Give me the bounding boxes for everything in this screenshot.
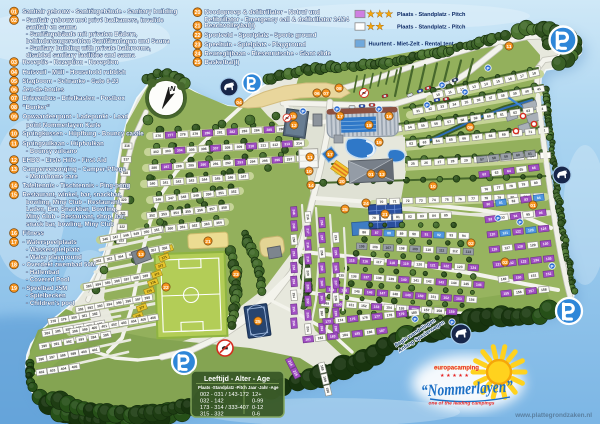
- svg-text:279: 279: [192, 132, 198, 136]
- svg-text:63: 63: [494, 171, 498, 175]
- svg-text:02: 02: [468, 241, 474, 247]
- svg-text:57: 57: [480, 157, 484, 161]
- svg-text:03: 03: [11, 60, 17, 66]
- svg-text:Miny Club - Restaurant, shop,: Miny Club - Restaurant, shop, bar,: [26, 215, 126, 221]
- svg-text:06: 06: [314, 91, 320, 97]
- svg-text:173: 173: [325, 319, 331, 324]
- svg-text:★: ★: [367, 22, 376, 33]
- svg-text:131: 131: [495, 262, 501, 267]
- svg-text:252: 252: [292, 265, 296, 271]
- svg-text:219: 219: [306, 256, 310, 262]
- svg-text:149: 149: [405, 293, 411, 297]
- svg-text:139: 139: [388, 277, 394, 281]
- svg-text:152: 152: [545, 272, 551, 277]
- svg-text:23: 23: [233, 272, 239, 278]
- svg-text:05: 05: [11, 79, 17, 85]
- svg-text:Restaurant, winkel, bar, snack: Restaurant, winkel, bar, snackbar,: [23, 193, 122, 199]
- svg-text:P: P: [550, 264, 553, 269]
- svg-text:65: 65: [449, 138, 453, 142]
- svg-text:25: 25: [342, 207, 348, 213]
- svg-text:314: 314: [296, 141, 302, 145]
- svg-text:156: 156: [516, 290, 522, 295]
- svg-text:Opwaardeerpunt - Ladepunkt - L: Opwaardeerpunt - Ladepunkt - Load: [23, 115, 129, 121]
- svg-text:01: 01: [368, 172, 374, 178]
- svg-text:Basketbal(l): Basketbal(l): [205, 60, 240, 66]
- svg-text:Sanitair gebouw - Sanitärgebäu: Sanitair gebouw - Sanitärgebäude - Sanit…: [23, 10, 178, 16]
- svg-text:226: 226: [334, 265, 338, 271]
- svg-text:229: 229: [334, 311, 338, 317]
- svg-text:81: 81: [396, 215, 400, 219]
- svg-text:158: 158: [436, 309, 442, 313]
- svg-text:N: N: [170, 84, 176, 93]
- svg-text:0-6: 0-6: [252, 412, 260, 418]
- svg-text:127: 127: [504, 246, 510, 251]
- svg-text:352: 352: [149, 213, 155, 218]
- svg-text:11: 11: [11, 141, 17, 147]
- svg-text:123: 123: [528, 228, 534, 233]
- svg-text:17: 17: [327, 152, 333, 158]
- svg-text:361: 361: [179, 225, 185, 230]
- svg-text:228: 228: [334, 295, 338, 301]
- svg-text:71: 71: [393, 199, 397, 203]
- svg-text:316: 316: [124, 144, 130, 148]
- svg-text:178: 178: [386, 313, 392, 318]
- svg-text:340: 340: [150, 181, 156, 185]
- svg-text:92: 92: [437, 233, 441, 237]
- svg-text:★: ★: [452, 373, 457, 379]
- svg-text:320: 320: [121, 198, 127, 202]
- svg-text:08: 08: [11, 105, 17, 111]
- svg-text:62: 62: [513, 111, 517, 115]
- svg-text:12: 12: [11, 158, 17, 164]
- svg-text:350: 350: [206, 192, 212, 197]
- svg-text:17: 17: [11, 240, 17, 246]
- svg-text:76: 76: [458, 197, 462, 201]
- svg-text:343: 343: [189, 178, 195, 182]
- svg-text:78: 78: [509, 184, 513, 188]
- svg-text:- Hallenbad: - Hallenbad: [26, 270, 59, 276]
- svg-text:Sportveld - Sportplatz - Sport: Sportveld - Sportplatz - Sports ground: [205, 33, 317, 39]
- svg-text:142: 142: [426, 279, 432, 283]
- svg-text:90: 90: [412, 232, 416, 236]
- svg-text:27: 27: [437, 160, 441, 164]
- svg-text:- Children's pool: - Children's pool: [26, 301, 75, 307]
- svg-text:347: 347: [241, 174, 247, 178]
- svg-text:Huurtent - Miet-Zelt - Rental: Huurtent - Miet-Zelt - Rental tent: [369, 42, 454, 48]
- svg-text:285: 285: [266, 128, 272, 132]
- svg-text:13: 13: [379, 172, 385, 178]
- svg-text:295: 295: [262, 159, 268, 163]
- svg-text:★: ★: [385, 9, 394, 20]
- svg-text:145: 145: [354, 289, 360, 293]
- svg-text:58: 58: [460, 118, 464, 122]
- svg-text:283: 283: [242, 129, 248, 133]
- svg-text:186: 186: [367, 330, 373, 335]
- svg-text:120: 120: [416, 262, 422, 266]
- svg-text:62: 62: [409, 142, 413, 146]
- svg-text:183: 183: [330, 334, 336, 339]
- svg-text:82: 82: [408, 215, 412, 219]
- svg-text:24: 24: [363, 201, 369, 207]
- svg-text:289: 289: [188, 163, 194, 167]
- svg-text:63: 63: [526, 109, 530, 113]
- svg-text:85: 85: [444, 213, 448, 217]
- svg-text:94: 94: [513, 214, 517, 218]
- svg-text:153: 153: [374, 305, 380, 309]
- svg-text:bowling, Miny Club - Restauran: bowling, Miny Club - Restaurant,: [26, 200, 122, 206]
- svg-text:02: 02: [502, 260, 508, 266]
- svg-text:137: 137: [363, 275, 369, 279]
- svg-text:121: 121: [502, 231, 508, 236]
- svg-text:155: 155: [503, 291, 509, 296]
- svg-text:25: 25: [255, 319, 261, 325]
- svg-text:347: 347: [168, 196, 174, 201]
- svg-text:353: 353: [161, 212, 167, 217]
- svg-text:124: 124: [470, 266, 476, 270]
- svg-text:Plaats - Standplatz - Pitch: Plaats - Standplatz - Pitch: [397, 12, 466, 18]
- svg-text:P: P: [377, 107, 380, 112]
- svg-text:- Sanitair gebouw met privé ba: - Sanitair gebouw met privé badkamers, i…: [23, 18, 165, 24]
- svg-text:123: 123: [457, 265, 463, 269]
- svg-text:- Sanitary building with priva: - Sanitary building with private bathroo…: [26, 46, 151, 52]
- svg-text:360: 360: [167, 226, 173, 231]
- svg-text:220: 220: [306, 270, 310, 276]
- svg-text:287: 287: [164, 165, 170, 169]
- svg-text:- Wasserspielplatz: - Wasserspielplatz: [26, 248, 80, 254]
- svg-text:136: 136: [351, 274, 357, 278]
- svg-text:177: 177: [374, 314, 380, 319]
- svg-text:352: 352: [231, 190, 237, 195]
- svg-text:141: 141: [413, 278, 419, 282]
- svg-text:Brievenbus - Briefkasten - Pos: Brievenbus - Briefkasten - Postbox: [23, 96, 126, 102]
- svg-text:249: 249: [292, 223, 296, 229]
- svg-text:Laden, Bar, Snackbar, Bowling,: Laden, Bar, Snackbar, Bowling,: [26, 207, 118, 213]
- svg-text:disabled sanitary facilities a: disabled sanitary facilities and sauna: [26, 53, 136, 59]
- svg-text:121: 121: [430, 263, 436, 267]
- svg-text:- Overdekt zwembad 50M: - Overdekt zwembad 50M: [23, 263, 96, 269]
- svg-text:92: 92: [488, 217, 492, 221]
- svg-text:356: 356: [197, 208, 203, 213]
- svg-text:362: 362: [192, 223, 198, 228]
- svg-text:341: 341: [163, 180, 169, 184]
- svg-text:75: 75: [445, 198, 449, 202]
- svg-text:P: P: [440, 83, 443, 88]
- svg-text:351: 351: [218, 191, 224, 196]
- svg-text:182: 182: [317, 336, 323, 341]
- svg-text:79: 79: [521, 182, 525, 186]
- svg-text:- Covered Pool: - Covered Pool: [26, 278, 70, 284]
- svg-text:146: 146: [476, 283, 482, 287]
- svg-text:68: 68: [488, 134, 492, 138]
- svg-text:184: 184: [342, 333, 348, 338]
- svg-text:346: 346: [155, 197, 161, 202]
- svg-text:59: 59: [504, 154, 508, 158]
- svg-text:Springvulkaan - Hüpfvulkan: Springvulkaan - Hüpfvulkan: [23, 142, 105, 148]
- svg-text:16: 16: [386, 114, 392, 120]
- svg-text:72: 72: [406, 199, 410, 203]
- svg-text:108: 108: [399, 246, 405, 250]
- svg-text:224: 224: [306, 326, 310, 332]
- svg-text:86: 86: [362, 230, 366, 234]
- svg-text:284: 284: [254, 128, 260, 132]
- svg-text:20: 20: [195, 10, 201, 16]
- svg-text:225: 225: [334, 250, 338, 256]
- svg-text:91: 91: [424, 233, 428, 237]
- svg-text:12: 12: [291, 123, 297, 129]
- svg-text:293: 293: [237, 160, 243, 164]
- svg-text:09: 09: [11, 114, 17, 120]
- svg-text:★: ★: [376, 22, 385, 33]
- svg-text:107: 107: [385, 246, 391, 250]
- svg-text:291: 291: [213, 162, 219, 166]
- svg-text:64: 64: [436, 139, 440, 143]
- svg-text:313: 313: [284, 142, 290, 146]
- svg-text:223: 223: [306, 312, 310, 318]
- svg-text:- Water playground: - Water playground: [26, 255, 82, 261]
- svg-text:140: 140: [401, 278, 407, 282]
- svg-text:83: 83: [420, 214, 424, 218]
- svg-text:EHBO - Erste Hilfe - First Aid: EHBO - Erste Hilfe - First Aid: [23, 158, 107, 164]
- svg-text:28: 28: [451, 159, 455, 163]
- svg-text:312: 312: [272, 143, 278, 147]
- svg-text:84: 84: [537, 196, 541, 200]
- svg-text:118: 118: [389, 261, 395, 265]
- svg-text:116: 116: [362, 259, 368, 263]
- svg-text:357: 357: [209, 207, 215, 212]
- svg-text:364: 364: [216, 221, 222, 226]
- svg-text:158: 158: [541, 288, 547, 293]
- svg-text:Speeltuin - Spielplatz - Playg: Speeltuin - Spielplatz - Playground: [205, 43, 307, 49]
- svg-text:14: 14: [308, 183, 314, 189]
- svg-text:22: 22: [163, 285, 169, 291]
- svg-text:257: 257: [320, 235, 324, 241]
- svg-text:250: 250: [292, 237, 296, 243]
- svg-text:Reuzeglijbaan - Riesenrutsche: Reuzeglijbaan - Riesenrutsche - Giant sl…: [205, 52, 332, 58]
- svg-text:10: 10: [306, 169, 312, 175]
- svg-text:345: 345: [215, 176, 221, 180]
- svg-text:★: ★: [458, 373, 463, 379]
- svg-text:67: 67: [475, 135, 479, 139]
- svg-text:342: 342: [176, 179, 182, 183]
- svg-text:P: P: [518, 220, 521, 225]
- svg-text:01: 01: [530, 203, 536, 209]
- svg-text:152: 152: [361, 304, 367, 308]
- svg-text:153: 153: [456, 297, 462, 301]
- svg-text:18: 18: [366, 123, 372, 129]
- svg-text:363: 363: [204, 222, 210, 227]
- svg-text:354: 354: [173, 211, 179, 216]
- svg-text:358: 358: [221, 205, 227, 210]
- svg-text:296: 296: [274, 158, 280, 162]
- svg-text:Plaats - Standplatz - Pitch: Plaats - Standplatz - Pitch: [397, 25, 466, 31]
- svg-text:124: 124: [541, 227, 547, 232]
- svg-text:185: 185: [354, 331, 360, 336]
- svg-text:144: 144: [451, 281, 457, 285]
- svg-text:10: 10: [11, 131, 17, 137]
- svg-text:255: 255: [292, 306, 296, 312]
- svg-text:305: 305: [189, 148, 195, 152]
- svg-text:09: 09: [467, 125, 473, 131]
- svg-text:Fitness: Fitness: [23, 231, 45, 237]
- svg-text:348: 348: [180, 195, 186, 200]
- svg-text:152: 152: [443, 296, 449, 300]
- svg-text:94: 94: [462, 234, 466, 238]
- svg-text:58: 58: [492, 156, 496, 160]
- svg-text:134: 134: [533, 258, 539, 263]
- svg-text:180: 180: [411, 311, 417, 316]
- svg-text:286: 286: [151, 166, 157, 170]
- svg-text:P: P: [450, 320, 453, 325]
- svg-text:302: 302: [153, 150, 159, 154]
- svg-text:113: 113: [465, 250, 471, 254]
- svg-text:95: 95: [526, 212, 530, 216]
- svg-text:P: P: [413, 317, 416, 322]
- svg-text:129: 129: [530, 243, 536, 248]
- svg-text:126: 126: [491, 247, 497, 252]
- svg-text:P: P: [301, 109, 304, 114]
- svg-text:115: 115: [349, 258, 355, 262]
- svg-text:307: 307: [213, 146, 219, 150]
- svg-text:★: ★: [376, 9, 385, 20]
- svg-text:74: 74: [432, 198, 436, 202]
- svg-text:106: 106: [372, 245, 378, 249]
- svg-text:04: 04: [11, 70, 17, 76]
- svg-text:66: 66: [532, 166, 536, 170]
- svg-text:82: 82: [511, 199, 515, 203]
- svg-text:Huisvuil - Müll - Household ru: Huisvuil - Müll - Household rubbish: [23, 70, 127, 76]
- svg-text:288: 288: [176, 164, 182, 168]
- svg-text:151: 151: [430, 295, 436, 299]
- svg-text:277: 277: [168, 133, 174, 137]
- svg-text:222: 222: [306, 298, 310, 304]
- svg-text:0-99: 0-99: [252, 399, 263, 405]
- svg-text:★: ★: [446, 373, 451, 379]
- svg-text:79: 79: [372, 216, 376, 220]
- svg-text:151: 151: [348, 303, 354, 307]
- svg-text:Tafeltennis - Tischtennis - Pi: Tafeltennis - Tischtennis - Ping-pong: [23, 184, 131, 190]
- svg-text:65: 65: [519, 167, 523, 171]
- svg-text:93: 93: [449, 233, 453, 237]
- svg-text:europacamping: europacamping: [434, 365, 479, 372]
- svg-text:66: 66: [462, 136, 466, 140]
- svg-text:181: 181: [305, 337, 311, 342]
- svg-text:128: 128: [517, 244, 523, 249]
- svg-text:224: 224: [334, 235, 338, 241]
- svg-text:01: 01: [11, 9, 17, 15]
- svg-text:08: 08: [336, 86, 342, 92]
- svg-text:P: P: [463, 90, 466, 95]
- svg-text:80: 80: [486, 202, 490, 206]
- svg-text:344: 344: [202, 177, 208, 181]
- svg-text:21: 21: [205, 239, 211, 245]
- svg-text:83: 83: [524, 197, 528, 201]
- svg-text:135: 135: [546, 257, 552, 262]
- svg-text:276: 276: [155, 134, 161, 138]
- svg-text:10: 10: [430, 184, 436, 190]
- svg-text:155: 155: [399, 306, 405, 310]
- svg-text:56: 56: [434, 122, 438, 126]
- svg-text:76: 76: [484, 187, 488, 191]
- svg-text:304: 304: [177, 148, 183, 152]
- svg-text:P: P: [335, 107, 338, 112]
- svg-text:81: 81: [499, 201, 503, 205]
- svg-text:218: 218: [306, 242, 310, 248]
- svg-text:290: 290: [200, 163, 206, 167]
- svg-text:61: 61: [528, 152, 532, 156]
- svg-text:25: 25: [195, 60, 201, 66]
- svg-text:111: 111: [439, 248, 445, 252]
- svg-text:20: 20: [339, 179, 345, 185]
- svg-text:55: 55: [421, 123, 425, 127]
- svg-text:157: 157: [424, 308, 430, 312]
- svg-text:187: 187: [379, 329, 385, 334]
- svg-text:87: 87: [375, 231, 379, 235]
- svg-text:176: 176: [362, 316, 368, 321]
- svg-text:150: 150: [418, 294, 424, 298]
- svg-text:25: 25: [411, 162, 415, 166]
- svg-text:221: 221: [306, 284, 310, 290]
- svg-text:- Waterspeelplaats: - Waterspeelplaats: [23, 240, 78, 246]
- svg-text:157: 157: [528, 289, 534, 294]
- svg-text:71: 71: [528, 130, 532, 134]
- svg-text:256: 256: [320, 220, 324, 226]
- svg-text:13: 13: [11, 167, 17, 173]
- svg-text:110: 110: [425, 248, 431, 252]
- svg-text:23: 23: [195, 42, 201, 48]
- svg-text:175: 175: [350, 317, 356, 322]
- svg-text:60: 60: [516, 153, 520, 157]
- svg-text:216: 216: [306, 214, 310, 220]
- svg-text:one of the leading campings: one of the leading campings: [429, 401, 496, 406]
- svg-text:278: 278: [180, 132, 186, 136]
- svg-text:62: 62: [482, 172, 486, 176]
- svg-text:19: 19: [11, 286, 17, 292]
- svg-text:21: 21: [195, 23, 201, 29]
- svg-text:109: 109: [412, 247, 418, 251]
- svg-text:297: 297: [287, 157, 293, 161]
- svg-text:P: P: [425, 103, 428, 108]
- svg-text:07: 07: [11, 96, 17, 102]
- svg-text:179: 179: [399, 312, 405, 317]
- svg-text:138: 138: [376, 276, 382, 280]
- svg-text:151: 151: [530, 273, 536, 278]
- svg-text:24: 24: [195, 51, 201, 57]
- svg-text:159: 159: [449, 310, 455, 314]
- svg-text:Springkussen - Hüpfburg - Boun: Springkussen - Hüpfburg - Bouncy castle: [23, 132, 145, 138]
- svg-text:16: 16: [11, 231, 17, 237]
- svg-text:133: 133: [520, 259, 526, 264]
- svg-text:143: 143: [438, 280, 444, 284]
- svg-text:149: 149: [500, 277, 506, 282]
- svg-text:57: 57: [447, 120, 451, 124]
- svg-text:147: 147: [379, 291, 385, 295]
- svg-text:sanitair en sauna: sanitair en sauna: [26, 25, 77, 31]
- svg-text:- Sanitärgebäude mit privaten: - Sanitärgebäude mit privaten Bädern,: [26, 32, 138, 38]
- svg-text:032 - 142: 032 - 142: [200, 399, 224, 405]
- svg-text:Leeftijd - Alter - Age: Leeftijd - Alter - Age: [204, 376, 270, 383]
- svg-text:310: 310: [248, 144, 254, 148]
- svg-text:306: 306: [201, 147, 207, 151]
- svg-text:311: 311: [260, 143, 266, 147]
- svg-text:303: 303: [165, 149, 171, 153]
- svg-text:Beachvolleybal(l): Beachvolleybal(l): [205, 24, 256, 30]
- svg-text:89: 89: [400, 232, 404, 236]
- svg-text:217: 217: [306, 228, 310, 234]
- svg-text:84: 84: [432, 214, 436, 218]
- svg-text:11: 11: [506, 44, 511, 50]
- svg-text:135: 135: [338, 273, 344, 277]
- svg-text:- Bouncy vulcano: - Bouncy vulcano: [26, 149, 78, 155]
